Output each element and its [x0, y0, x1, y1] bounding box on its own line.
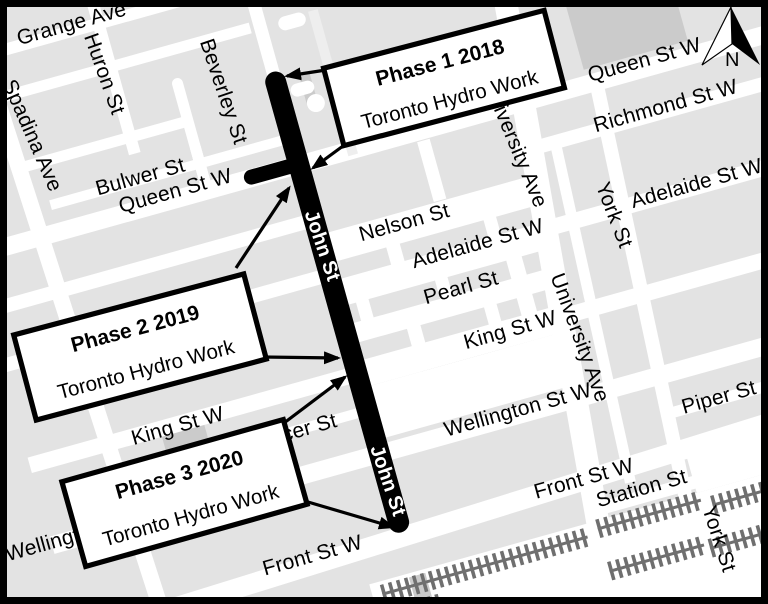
- svg-text:N: N: [725, 49, 739, 71]
